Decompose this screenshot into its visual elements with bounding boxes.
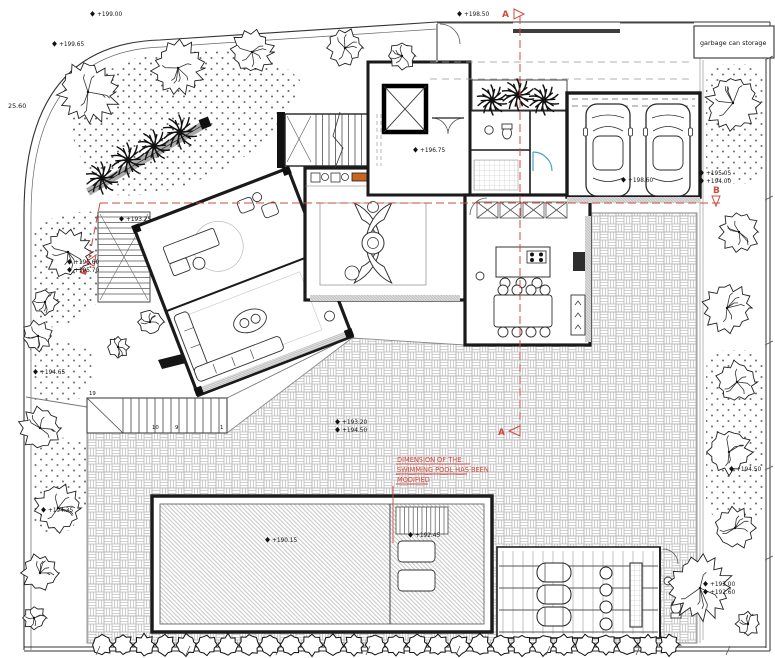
tiled-floor: [474, 160, 518, 190]
bush-icon: [595, 635, 617, 655]
tree-trunk: [44, 301, 46, 303]
palm-trunk: [152, 144, 156, 148]
boundary-dim-label: 25.60: [8, 102, 26, 110]
section-b-label-right: B: [713, 186, 720, 196]
section-a-label-top: A: [502, 10, 509, 20]
tree-trunk: [117, 346, 119, 348]
level-label: +199.65: [59, 42, 84, 48]
tree-trunk: [87, 91, 89, 93]
level-label: +193.25: [126, 217, 151, 223]
palm-trunk: [516, 93, 520, 97]
side-table: [345, 266, 359, 280]
tree-icon: [735, 611, 759, 635]
swimming-pool: [152, 496, 492, 632]
floor-plan-canvas: garbage can storage A A B B DIMENSION OF…: [0, 0, 775, 658]
tree-icon: [327, 29, 364, 66]
entry-hall: [368, 24, 470, 195]
tree-trunk: [39, 427, 41, 429]
tree-trunk: [344, 47, 346, 49]
tree-icon: [138, 310, 165, 333]
level-label: +195.70: [74, 268, 99, 274]
level-marker-diamond: [52, 41, 57, 47]
bush-icon: [239, 635, 260, 656]
tree-trunk: [37, 335, 39, 337]
cooktop-icon: [527, 251, 546, 263]
level-marker-diamond: [457, 11, 462, 17]
section-a-marker-top: [514, 9, 524, 19]
kitchen-island: [496, 247, 550, 288]
garbage-storage: garbage can storage: [694, 26, 774, 58]
gate-swing-arc: [440, 24, 460, 44]
note-line-3: MODIFIED: [397, 476, 430, 484]
tree-trunk: [728, 451, 730, 453]
tree-icon: [389, 43, 416, 70]
garbage-storage-label: garbage can storage: [700, 39, 766, 47]
tree-trunk: [732, 102, 734, 104]
tree-icon: [702, 285, 752, 334]
level-label: +190.15: [272, 538, 297, 544]
tree-trunk: [736, 381, 738, 383]
level-label: +194.50: [342, 428, 367, 434]
palm-trunk: [100, 176, 104, 180]
outdoor-bar-counter: [630, 563, 642, 627]
tall-cabinet: [571, 295, 585, 335]
tree-icon: [719, 213, 759, 252]
washbasin-icon: [485, 126, 493, 134]
section-b-marker-right: [712, 196, 720, 206]
tree-trunk: [39, 572, 41, 574]
pergola-lounge: [497, 547, 681, 638]
level-label: +192.45: [415, 533, 440, 539]
tree-trunk: [177, 67, 179, 69]
outdoor-loungers: [537, 563, 571, 626]
palm-trunk: [490, 98, 494, 102]
bush-icon: [638, 634, 658, 655]
pool-lounger: [398, 570, 435, 591]
tree-trunk: [67, 251, 69, 253]
sink-icon: [476, 272, 484, 280]
pool-lounger: [398, 541, 435, 562]
level-label: +192.60: [710, 590, 735, 596]
boundary-right-line: [766, 22, 770, 651]
garage-step-band: [567, 197, 700, 203]
tree-trunk: [734, 527, 736, 529]
level-label: +198.50: [464, 12, 489, 18]
level-label: +195.05: [706, 171, 731, 177]
step-number: 9: [175, 425, 179, 431]
kitchen-dining: [465, 195, 591, 345]
tree-trunk: [747, 623, 749, 625]
lounge-window-band: [310, 295, 460, 301]
entry-path-wall: [436, 24, 438, 62]
palm-trunk: [126, 158, 130, 162]
tree-icon: [21, 554, 60, 590]
level-label: +194.35: [48, 508, 73, 514]
tree-trunk: [251, 51, 253, 53]
bush-icon: [301, 634, 324, 656]
section-a-label-bottom: A: [498, 428, 505, 438]
step-number: 1: [220, 425, 223, 431]
tree-trunk: [33, 617, 35, 619]
step-number: 10: [152, 425, 159, 431]
bush-icon: [112, 635, 133, 655]
level-label: +194.50: [736, 467, 761, 473]
note-line-1: DIMENSION OF THE: [397, 456, 461, 464]
tree-icon: [23, 607, 47, 630]
level-marker-diamond: [90, 11, 95, 17]
tree-trunk: [149, 321, 151, 323]
drawing-stage: garbage can storage A A B B DIMENSION OF…: [0, 0, 775, 658]
kitchen-window-band: [585, 216, 591, 342]
tree-trunk: [401, 55, 403, 57]
garage: [567, 93, 700, 203]
palm-trunk: [542, 98, 546, 102]
tree-trunk: [738, 231, 740, 233]
tree-icon: [108, 337, 130, 359]
elevator: [384, 86, 426, 132]
tree-trunk: [726, 307, 728, 309]
bush-icon: [491, 635, 511, 655]
step-number: 19: [89, 391, 96, 397]
note-line-2: SWIMMING POOL HAS BEEN: [397, 466, 489, 474]
bush-icon: [344, 634, 364, 656]
tree-trunk: [699, 587, 701, 589]
car-icon: [584, 104, 633, 196]
level-label: +199.00: [97, 12, 122, 18]
level-label: +195.60: [74, 260, 99, 266]
toilet-icon: [502, 124, 512, 139]
level-label: +193.20: [342, 420, 367, 426]
fridge-icon: [573, 252, 585, 271]
level-label: +198.60: [628, 178, 653, 184]
level-label: +194.00: [706, 179, 731, 185]
palm-trunk: [178, 130, 182, 134]
level-label: +196.75: [420, 148, 445, 154]
level-label: +193.00: [710, 582, 735, 588]
level-label: +194.65: [40, 370, 65, 376]
